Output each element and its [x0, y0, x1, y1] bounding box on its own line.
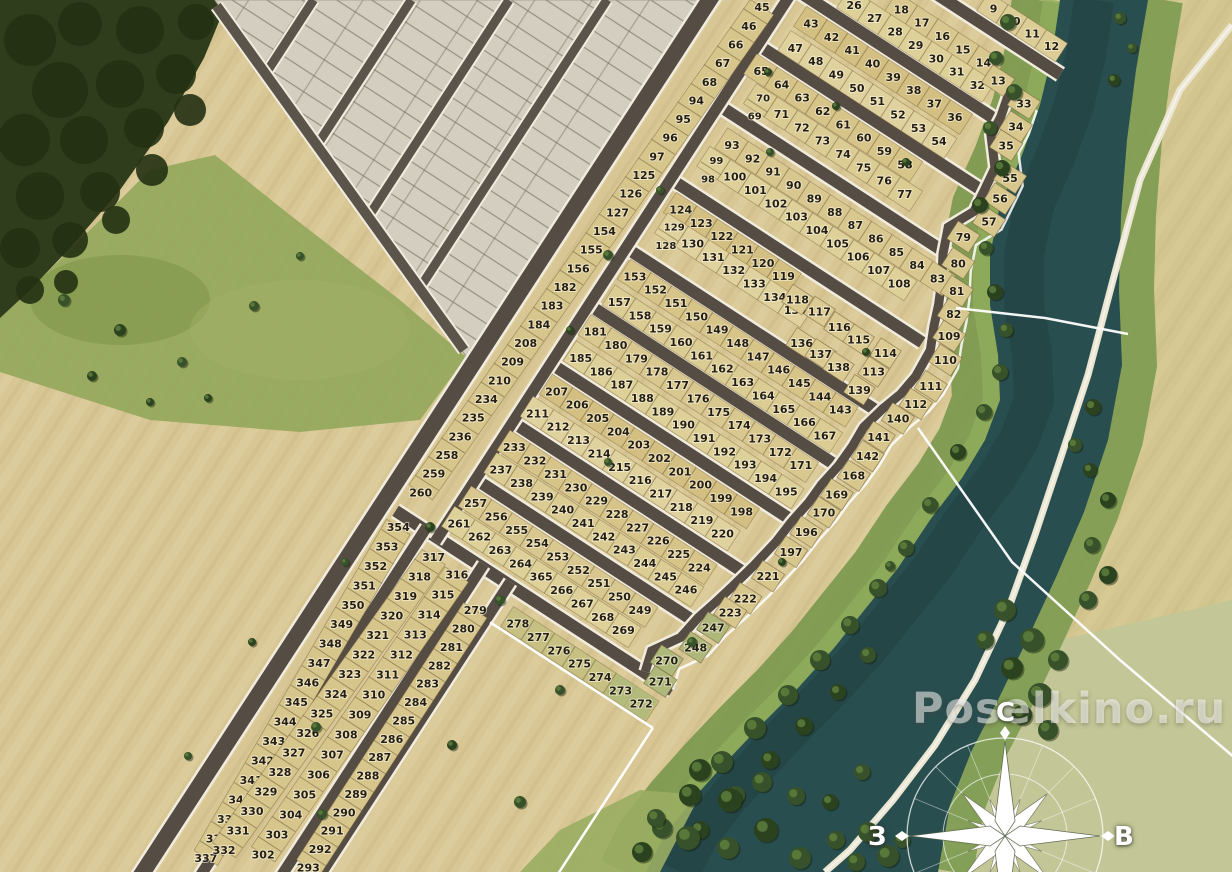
plot-label-40: 40 [865, 57, 881, 70]
plot-label-287: 287 [368, 751, 391, 764]
plot-label-170: 170 [812, 506, 835, 519]
plot-label-131: 131 [702, 251, 725, 264]
plot-label-242: 242 [592, 530, 615, 543]
plot-label-285: 285 [392, 714, 415, 727]
plot-label-269: 269 [612, 624, 635, 637]
plot-label-49: 49 [829, 68, 844, 81]
plot-label-104: 104 [805, 224, 828, 237]
plot-label-347: 347 [308, 657, 331, 670]
plot-label-280: 280 [452, 623, 475, 636]
plot-label-284: 284 [404, 696, 427, 709]
plot-label-166: 166 [793, 416, 816, 429]
plot-label-92: 92 [745, 152, 760, 165]
plot-label-283: 283 [416, 678, 439, 691]
plot-label-267: 267 [571, 597, 594, 610]
plot-label-195: 195 [775, 485, 798, 498]
plot-label-290: 290 [333, 806, 356, 819]
plot-label-255: 255 [505, 524, 528, 537]
plot-label-174: 174 [728, 419, 751, 432]
plot-label-141: 141 [867, 431, 890, 444]
plot-label-247: 247 [702, 622, 725, 635]
plot-label-278: 278 [506, 618, 529, 631]
plot-label-268: 268 [591, 611, 614, 624]
plot-label-303: 303 [265, 828, 288, 841]
plot-label-316: 316 [445, 568, 468, 581]
plot-label-210: 210 [488, 374, 511, 387]
plot-label-182: 182 [554, 281, 577, 294]
plot-label-289: 289 [344, 788, 367, 801]
plot-label-213: 213 [567, 434, 590, 447]
plot-label-98: 98 [701, 174, 715, 185]
plot-label-263: 263 [489, 544, 512, 557]
plot-label-154: 154 [593, 225, 616, 238]
plot-label-165: 165 [772, 403, 795, 416]
plot-label-72: 72 [794, 121, 809, 134]
plot-label-107: 107 [867, 264, 890, 277]
plot-label-111: 111 [919, 380, 942, 393]
plot-label-226: 226 [647, 535, 670, 548]
plot-label-325: 325 [310, 707, 333, 720]
plot-label-353: 353 [375, 540, 398, 553]
plot-label-52: 52 [890, 108, 905, 121]
plot-label-270: 270 [655, 655, 678, 668]
plot-label-13: 13 [990, 75, 1005, 88]
plot-label-69: 69 [748, 112, 762, 123]
plot-label-246: 246 [674, 584, 697, 597]
plot-label-148: 148 [726, 337, 749, 350]
plot-label-61: 61 [836, 118, 851, 131]
plot-label-350: 350 [342, 599, 365, 612]
plot-label-329: 329 [254, 786, 277, 799]
plot-label-62: 62 [815, 105, 830, 118]
plot-label-231: 231 [544, 468, 567, 481]
plot-label-328: 328 [268, 766, 291, 779]
plot-label-83: 83 [930, 272, 945, 285]
plot-label-171: 171 [789, 459, 812, 472]
plot-label-239: 239 [531, 490, 554, 503]
plot-label-291: 291 [321, 825, 344, 838]
plot-label-348: 348 [319, 638, 342, 651]
plot-label-161: 161 [690, 349, 713, 362]
plot-label-88: 88 [827, 206, 842, 219]
plot-label-260: 260 [409, 486, 432, 499]
plot-label-66: 66 [728, 38, 744, 51]
plot-label-64: 64 [774, 78, 790, 91]
plot-label-59: 59 [877, 145, 892, 158]
plot-label-80: 80 [950, 257, 966, 270]
plot-label-252: 252 [567, 564, 590, 577]
plot-label-153: 153 [623, 270, 646, 283]
plot-label-112: 112 [904, 398, 927, 411]
plot-label-68: 68 [702, 76, 717, 89]
plot-label-206: 206 [566, 399, 589, 412]
plot-label-181: 181 [584, 326, 607, 339]
plot-label-76: 76 [877, 175, 893, 188]
plot-label-155: 155 [580, 244, 603, 257]
plot-label-51: 51 [870, 95, 885, 108]
plot-label-259: 259 [422, 468, 445, 481]
plot-label-79: 79 [956, 231, 971, 244]
plot-label-38: 38 [906, 84, 921, 97]
plot-label-130: 130 [681, 237, 704, 250]
plot-label-194: 194 [754, 472, 777, 485]
plot-label-46: 46 [741, 20, 757, 33]
plot-label-29: 29 [908, 39, 923, 52]
plot-label-164: 164 [752, 389, 775, 402]
plot-label-93: 93 [724, 139, 739, 152]
plot-label-304: 304 [279, 808, 302, 821]
plot-label-178: 178 [645, 366, 668, 379]
plot-label-90: 90 [786, 179, 802, 192]
plot-label-227: 227 [626, 521, 649, 534]
plot-label-346: 346 [296, 677, 319, 690]
plot-label-30: 30 [929, 52, 945, 65]
plot-label-101: 101 [744, 184, 767, 197]
plot-label-282: 282 [428, 659, 451, 672]
plot-label-288: 288 [356, 770, 379, 783]
plot-label-138: 138 [827, 361, 850, 374]
plot-label-250: 250 [608, 591, 631, 604]
plot-label-258: 258 [435, 449, 458, 462]
plot-label-216: 216 [629, 474, 652, 487]
plot-label-84: 84 [909, 259, 925, 272]
plot-label-142: 142 [856, 450, 879, 463]
plot-label-173: 173 [748, 432, 771, 445]
plot-label-331: 331 [227, 825, 250, 838]
plot-label-322: 322 [352, 649, 375, 662]
plot-label-354: 354 [387, 521, 410, 534]
plot-label-313: 313 [404, 628, 427, 641]
plot-label-204: 204 [607, 425, 630, 438]
plot-label-100: 100 [723, 171, 746, 184]
plot-label-86: 86 [868, 232, 884, 245]
plot-label-36: 36 [947, 111, 963, 124]
plot-label-108: 108 [888, 277, 911, 290]
plot-label-126: 126 [619, 188, 642, 201]
plot-label-274: 274 [589, 671, 612, 684]
plot-label-187: 187 [610, 379, 633, 392]
plot-label-317: 317 [422, 551, 445, 564]
plot-label-18: 18 [894, 3, 909, 16]
plot-label-127: 127 [606, 206, 629, 219]
plot-label-150: 150 [685, 310, 708, 323]
map-scene: 1817161514262728293031324342414039383736… [0, 0, 1232, 872]
plot-label-73: 73 [815, 135, 830, 148]
plot-label-162: 162 [711, 363, 734, 376]
plot-label-305: 305 [293, 788, 316, 801]
plot-label-144: 144 [808, 390, 831, 403]
plot-label-179: 179 [625, 352, 648, 365]
plot-label-262: 262 [468, 531, 491, 544]
plot-label-129: 129 [664, 223, 685, 234]
plot-label-308: 308 [335, 728, 358, 741]
plot-label-143: 143 [829, 404, 852, 417]
plot-label-26: 26 [846, 0, 862, 12]
plot-label-196: 196 [795, 526, 818, 539]
plot-label-205: 205 [586, 412, 609, 425]
plot-label-81: 81 [949, 285, 964, 298]
plot-label-113: 113 [862, 366, 885, 379]
plot-label-332: 332 [213, 844, 236, 857]
plot-label-123: 123 [690, 217, 713, 230]
plot-label-244: 244 [633, 557, 656, 570]
plot-label-117: 117 [808, 306, 831, 319]
plot-label-211: 211 [526, 407, 549, 420]
plot-label-85: 85 [889, 246, 904, 259]
plot-label-312: 312 [390, 648, 413, 661]
plot-label-276: 276 [547, 644, 570, 657]
plot-label-11: 11 [1025, 28, 1040, 41]
plot-label-157: 157 [608, 296, 631, 309]
compass-west-label: З [868, 822, 886, 852]
plot-label-70: 70 [756, 93, 770, 104]
plot-label-314: 314 [418, 608, 441, 621]
plot-label-251: 251 [587, 577, 610, 590]
plot-label-56: 56 [992, 193, 1008, 206]
plot-label-139: 139 [848, 384, 871, 397]
watermark: Poselkino.ru [912, 684, 1226, 734]
plot-label-272: 272 [630, 698, 653, 711]
plot-label-17: 17 [914, 17, 929, 30]
plot-label-257: 257 [464, 497, 487, 510]
plot-label-16: 16 [935, 30, 951, 43]
plot-label-146: 146 [767, 364, 790, 377]
plot-label-208: 208 [514, 337, 537, 350]
plot-label-249: 249 [629, 604, 652, 617]
plot-label-310: 310 [362, 688, 385, 701]
plot-label-202: 202 [648, 452, 671, 465]
plot-label-352: 352 [364, 560, 387, 573]
plot-label-67: 67 [715, 57, 730, 70]
plot-label-273: 273 [609, 684, 632, 697]
plot-label-309: 309 [348, 708, 371, 721]
plot-label-94: 94 [689, 94, 705, 107]
plot-label-91: 91 [765, 166, 780, 179]
plot-label-324: 324 [324, 688, 347, 701]
plot-label-175: 175 [707, 406, 730, 419]
plot-label-186: 186 [590, 365, 613, 378]
plot-label-232: 232 [523, 455, 546, 468]
plot-label-307: 307 [321, 748, 344, 761]
plot-label-89: 89 [807, 192, 822, 205]
plot-label-286: 286 [380, 733, 403, 746]
plot-label-115: 115 [847, 333, 870, 346]
plot-label-168: 168 [842, 470, 865, 483]
plot-label-43: 43 [803, 17, 818, 30]
plot-label-137: 137 [809, 348, 832, 361]
plot-label-77: 77 [897, 188, 912, 201]
plot-label-344: 344 [274, 716, 297, 729]
plot-label-201: 201 [668, 465, 691, 478]
plot-label-71: 71 [774, 108, 789, 121]
plot-label-253: 253 [546, 551, 569, 564]
plot-label-188: 188 [631, 392, 654, 405]
plot-label-118: 118 [786, 294, 809, 307]
plot-label-189: 189 [651, 405, 674, 418]
plot-label-315: 315 [431, 588, 454, 601]
plot-label-50: 50 [849, 82, 865, 95]
plot-label-254: 254 [526, 537, 549, 550]
compass-east-label: В [1114, 822, 1134, 852]
plot-label-218: 218 [670, 501, 693, 514]
plot-label-222: 222 [734, 592, 757, 605]
plot-label-241: 241 [572, 517, 595, 530]
plot-label-209: 209 [501, 356, 524, 369]
plot-label-323: 323 [338, 668, 361, 681]
plot-label-238: 238 [510, 477, 533, 490]
plot-label-225: 225 [667, 548, 690, 561]
plot-label-106: 106 [847, 251, 870, 264]
plot-label-302: 302 [252, 848, 275, 861]
plot-label-31: 31 [949, 66, 964, 79]
plot-label-159: 159 [649, 323, 672, 336]
plot-label-197: 197 [780, 546, 803, 559]
plot-label-160: 160 [670, 336, 693, 349]
plot-label-220: 220 [711, 527, 734, 540]
plot-label-266: 266 [550, 584, 573, 597]
plot-label-193: 193 [734, 459, 757, 472]
plot-label-245: 245 [654, 570, 677, 583]
plot-label-119: 119 [772, 270, 795, 283]
plot-label-199: 199 [710, 492, 733, 505]
plot-label-125: 125 [632, 169, 655, 182]
plot-label-75: 75 [856, 161, 871, 174]
plot-label-349: 349 [330, 618, 353, 631]
plot-label-122: 122 [710, 230, 733, 243]
plot-label-191: 191 [692, 432, 715, 445]
compass-north-label: С [996, 698, 1015, 728]
plot-label-48: 48 [808, 55, 823, 68]
plot-label-185: 185 [569, 352, 592, 365]
plot-label-151: 151 [664, 297, 687, 310]
plot-label-219: 219 [690, 514, 713, 527]
plot-label-45: 45 [754, 1, 769, 14]
plot-label-42: 42 [824, 31, 839, 44]
plot-label-345: 345 [285, 696, 308, 709]
plot-label-200: 200 [689, 479, 712, 492]
plot-label-116: 116 [828, 321, 851, 334]
plot-label-97: 97 [649, 150, 664, 163]
plot-label-47: 47 [788, 42, 803, 55]
plot-label-96: 96 [662, 132, 678, 145]
plot-label-277: 277 [527, 631, 550, 644]
plot-label-223: 223 [719, 606, 742, 619]
plot-label-132: 132 [722, 264, 745, 277]
plot-label-229: 229 [585, 495, 608, 508]
plot-label-53: 53 [911, 122, 926, 135]
plot-label-177: 177 [666, 379, 689, 392]
plot-label-321: 321 [366, 629, 389, 642]
plot-label-318: 318 [408, 570, 431, 583]
plot-label-9: 9 [990, 2, 998, 15]
plot-label-230: 230 [565, 481, 588, 494]
plot-label-114: 114 [874, 347, 897, 360]
plot-label-365: 365 [530, 571, 553, 584]
plot-label-28: 28 [888, 26, 903, 39]
plot-label-128: 128 [655, 241, 676, 252]
plot-label-120: 120 [751, 257, 774, 270]
plot-label-103: 103 [785, 211, 808, 224]
plot-label-240: 240 [551, 504, 574, 517]
plot-label-234: 234 [475, 393, 498, 406]
plot-label-140: 140 [886, 412, 909, 425]
plot-label-236: 236 [449, 430, 472, 443]
plot-label-221: 221 [757, 570, 780, 583]
plot-label-320: 320 [380, 610, 403, 623]
plot-label-124: 124 [669, 203, 692, 216]
plot-label-190: 190 [672, 419, 695, 432]
plot-label-95: 95 [676, 113, 691, 126]
plot-label-35: 35 [998, 139, 1013, 152]
plot-label-327: 327 [282, 746, 305, 759]
plot-label-145: 145 [788, 377, 811, 390]
plot-label-319: 319 [394, 590, 417, 603]
plot-label-235: 235 [462, 412, 485, 425]
plot-label-54: 54 [931, 135, 947, 148]
plot-label-12: 12 [1044, 40, 1059, 53]
plot-label-183: 183 [540, 300, 563, 313]
plot-label-87: 87 [848, 219, 863, 232]
plot-label-243: 243 [613, 544, 636, 557]
plot-label-311: 311 [376, 668, 399, 681]
plot-label-306: 306 [307, 768, 330, 781]
plot-label-147: 147 [747, 350, 770, 363]
plot-label-237: 237 [490, 464, 513, 477]
satellite-plot-map: 1817161514262728293031324342414039383736… [0, 0, 1232, 872]
plot-label-105: 105 [826, 237, 849, 250]
plot-label-207: 207 [545, 385, 568, 398]
plot-label-212: 212 [547, 421, 570, 434]
plot-label-121: 121 [731, 244, 754, 257]
plot-label-41: 41 [844, 44, 859, 57]
plot-label-172: 172 [769, 446, 792, 459]
plot-label-102: 102 [764, 197, 787, 210]
plot-label-330: 330 [241, 805, 264, 818]
plot-label-203: 203 [627, 439, 650, 452]
plot-label-176: 176 [687, 392, 710, 405]
plot-label-109: 109 [938, 330, 961, 343]
plot-label-224: 224 [688, 561, 711, 574]
plot-label-82: 82 [946, 308, 961, 321]
plot-label-149: 149 [706, 324, 729, 337]
plot-label-99: 99 [709, 156, 723, 167]
plot-label-34: 34 [1008, 121, 1024, 134]
plot-label-264: 264 [509, 557, 532, 570]
plot-label-156: 156 [567, 262, 590, 275]
plot-label-271: 271 [649, 676, 672, 689]
plot-label-217: 217 [649, 487, 672, 500]
plot-label-167: 167 [813, 429, 836, 442]
plot-label-256: 256 [485, 511, 508, 524]
plot-label-192: 192 [713, 445, 736, 458]
plot-label-275: 275 [568, 658, 591, 671]
plot-label-279: 279 [464, 604, 487, 617]
plot-label-281: 281 [440, 641, 463, 654]
plot-label-198: 198 [730, 505, 753, 518]
plot-label-74: 74 [835, 148, 851, 161]
plot-label-163: 163 [731, 376, 754, 389]
plot-label-57: 57 [981, 215, 996, 228]
plot-label-152: 152 [644, 284, 667, 297]
plot-label-110: 110 [934, 354, 957, 367]
plot-label-63: 63 [795, 92, 810, 105]
plot-label-169: 169 [825, 488, 848, 501]
plot-label-158: 158 [628, 309, 651, 322]
plot-label-293: 293 [297, 861, 320, 872]
plot-label-60: 60 [856, 132, 872, 145]
plot-label-233: 233 [503, 441, 526, 454]
plot-label-27: 27 [867, 12, 882, 25]
